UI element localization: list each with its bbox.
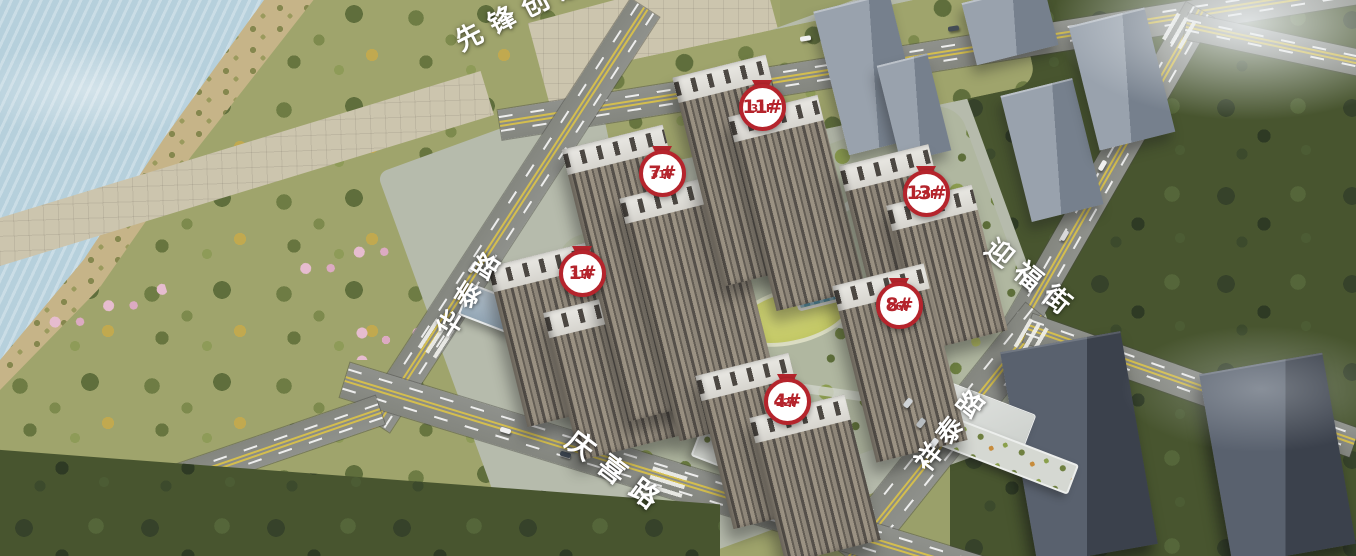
building-floors: 28F [915,189,938,200]
building-floors: 31F [651,169,674,180]
pin-circle: 7# 31F [639,150,686,197]
building-floors: 31F [751,103,774,114]
pin-circle: 1# 31F [559,250,606,297]
pin-circle: 4# 22F [764,378,811,425]
building-floors: 31F [571,269,594,280]
pin-circle: 11# 31F [739,84,786,131]
pin-circle: 8# 26F [876,282,923,329]
building-floors: 26F [888,301,911,312]
pin-circle: 13# 28F [903,170,950,217]
building-floors: 22F [776,397,799,408]
aerial-site-plan: 先锋创意 华泰路 迎福街 祥泰路 庆喜路 1# 31F 4# 22F 7# 31… [0,0,1356,556]
